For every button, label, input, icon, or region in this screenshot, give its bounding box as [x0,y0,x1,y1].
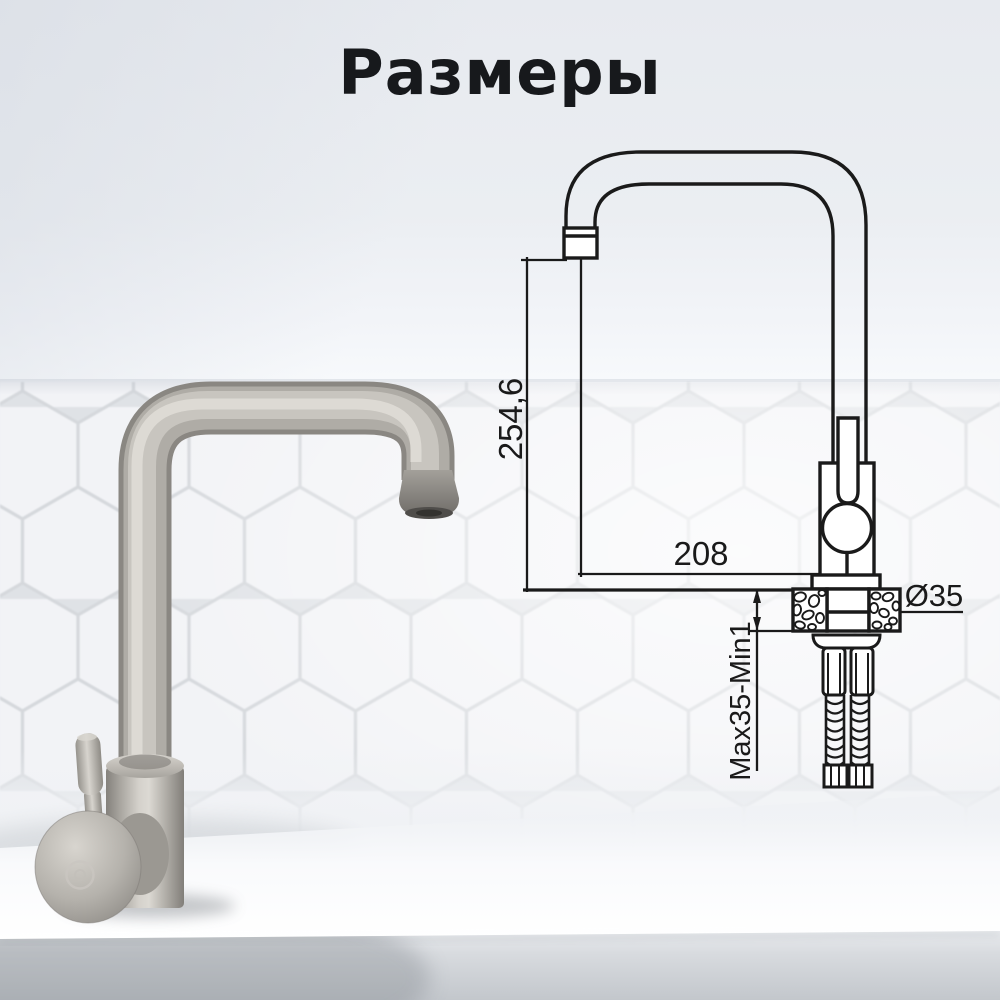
drawing-lever [838,418,858,503]
hose-nut-left [824,765,847,787]
drawing-faucet-outline [564,152,900,631]
dim-diameter-label: Ø35 [905,578,964,613]
drawing-ball-joint [823,504,872,553]
drawing-mount-nut [827,589,869,631]
spout-inner [595,184,833,463]
dim-mount-label: Max35-Min1 [725,621,757,781]
product-dimensions-image: 254,6 208 Ø35 Max35-Min1 Размеры [0,0,1000,1000]
supply-hoses [826,695,869,766]
hose-connector-right [851,648,873,695]
drawing-aerator [564,228,597,258]
page-title: Размеры [0,36,1000,109]
hose-connector-left [823,648,845,695]
dim-reach-label: 208 [673,535,728,572]
under-counter-hardware [813,635,880,787]
hose-nut-right [849,765,872,787]
dimension-drawing: 254,6 208 Ø35 Max35-Min1 [0,0,1000,1000]
drawing-base-flange [812,575,880,589]
dim-height-label: 254,6 [492,378,529,461]
shank-flare [813,635,880,648]
